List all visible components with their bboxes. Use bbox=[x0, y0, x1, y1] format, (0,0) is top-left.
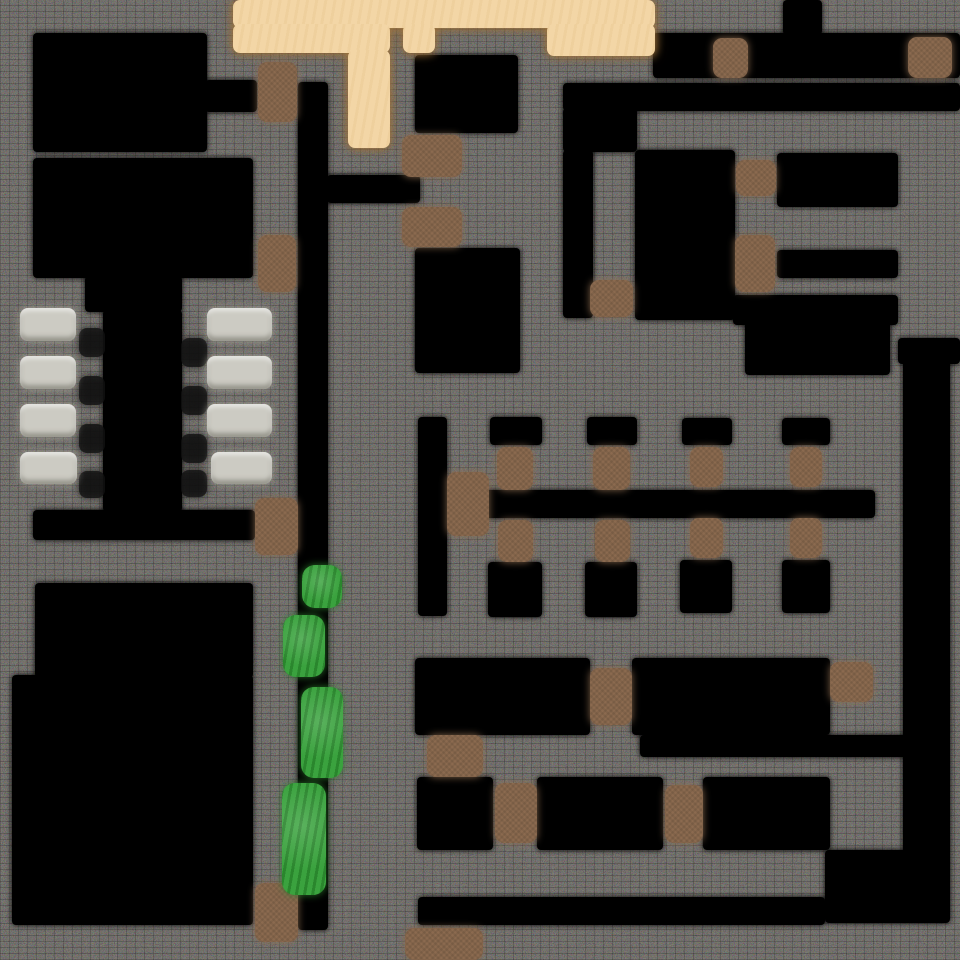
stand-right-1 bbox=[181, 338, 207, 367]
door-west[interactable] bbox=[258, 235, 296, 292]
room-nw-a bbox=[33, 33, 207, 152]
plaza-mid bbox=[403, 24, 435, 53]
stand-right-3 bbox=[181, 434, 207, 463]
pew-left-3[interactable] bbox=[20, 404, 76, 437]
stand-right-2 bbox=[181, 386, 207, 415]
office-cell-d1 bbox=[782, 418, 830, 445]
plaza-path bbox=[348, 50, 390, 148]
church-south-hall bbox=[33, 510, 255, 540]
pew-right-1[interactable] bbox=[207, 308, 272, 341]
office-main-corridor bbox=[485, 490, 875, 518]
corridor-se-corner bbox=[825, 850, 947, 923]
room-se-c bbox=[417, 777, 493, 850]
room-se-b bbox=[632, 658, 830, 735]
room-se-d bbox=[537, 777, 663, 850]
game-map bbox=[0, 0, 960, 960]
corridor-east-vertical bbox=[903, 338, 950, 923]
room-sw-a bbox=[35, 583, 253, 678]
door-nw[interactable] bbox=[258, 62, 297, 122]
stand-right-4 bbox=[181, 470, 207, 497]
pew-right-4[interactable] bbox=[211, 452, 272, 484]
door-office-d2[interactable] bbox=[790, 518, 822, 558]
door-se-3[interactable] bbox=[427, 735, 483, 777]
room-se-e bbox=[703, 777, 830, 850]
room-se-a bbox=[415, 658, 590, 735]
office-cell-c1 bbox=[682, 418, 732, 445]
corridor-south bbox=[418, 897, 825, 925]
church-aisle bbox=[103, 310, 182, 512]
door-ne-junction[interactable] bbox=[590, 280, 633, 317]
door-office-b1[interactable] bbox=[593, 447, 630, 490]
room-ne-tall bbox=[635, 150, 735, 320]
door-office-main[interactable] bbox=[447, 472, 489, 536]
bush-3 bbox=[301, 687, 343, 778]
door-church[interactable] bbox=[255, 498, 298, 555]
bush-2 bbox=[283, 615, 325, 677]
office-vert-corridor bbox=[418, 417, 447, 616]
bush-4 bbox=[282, 783, 326, 895]
door-office-a1[interactable] bbox=[497, 447, 533, 490]
door-south-wide[interactable] bbox=[405, 928, 483, 960]
pew-left-1[interactable] bbox=[20, 308, 76, 341]
pew-right-2[interactable] bbox=[207, 356, 272, 389]
door-ne-b[interactable] bbox=[735, 235, 775, 292]
pew-right-3[interactable] bbox=[207, 404, 272, 437]
corridor-nw-door bbox=[205, 80, 257, 112]
door-se-4[interactable] bbox=[495, 783, 537, 843]
plaza-right bbox=[547, 24, 655, 56]
door-office-d1[interactable] bbox=[790, 447, 822, 487]
room-mid-b bbox=[415, 248, 520, 373]
door-se-5[interactable] bbox=[665, 785, 703, 843]
office-cell-b1 bbox=[587, 417, 637, 445]
room-ne-c bbox=[745, 320, 890, 375]
door-se-1[interactable] bbox=[590, 668, 632, 725]
door-north-1[interactable] bbox=[713, 38, 748, 78]
plaza-left bbox=[233, 24, 390, 53]
bush-1 bbox=[302, 565, 342, 608]
room-mid-a bbox=[415, 55, 518, 133]
stand-left-3 bbox=[79, 424, 105, 453]
door-office-b2[interactable] bbox=[595, 520, 630, 562]
door-se-2[interactable] bbox=[830, 662, 873, 702]
stand-left-2 bbox=[79, 376, 105, 405]
office-cell-d2 bbox=[782, 560, 830, 613]
pew-left-2[interactable] bbox=[20, 356, 76, 389]
church-aisle-top bbox=[85, 276, 182, 312]
door-office-c1[interactable] bbox=[690, 447, 723, 487]
pew-left-4[interactable] bbox=[20, 452, 77, 484]
room-sw-b bbox=[12, 675, 253, 925]
door-north-2[interactable] bbox=[908, 37, 952, 78]
room-ne-b bbox=[777, 250, 898, 278]
corridor-ne bbox=[563, 83, 960, 111]
door-office-c2[interactable] bbox=[690, 518, 723, 558]
office-cell-b2 bbox=[585, 562, 637, 617]
door-mid-lower[interactable] bbox=[402, 207, 462, 247]
door-office-a2[interactable] bbox=[498, 520, 533, 562]
room-ne-a bbox=[777, 153, 898, 207]
office-cell-a2 bbox=[488, 562, 542, 617]
corridor-se-strip bbox=[640, 735, 910, 757]
office-cell-c2 bbox=[680, 560, 732, 613]
corridor-branch-mid bbox=[327, 175, 420, 203]
door-mid-upper[interactable] bbox=[402, 135, 462, 177]
office-cell-a1 bbox=[490, 417, 542, 445]
junction-ne bbox=[563, 108, 637, 152]
room-nw-b bbox=[33, 158, 253, 278]
stand-left-4 bbox=[79, 471, 105, 498]
door-ne-a[interactable] bbox=[736, 160, 776, 196]
corridor-north-stub bbox=[783, 0, 822, 35]
corridor-ne-vertical bbox=[563, 150, 593, 318]
stand-left-1 bbox=[79, 328, 105, 357]
